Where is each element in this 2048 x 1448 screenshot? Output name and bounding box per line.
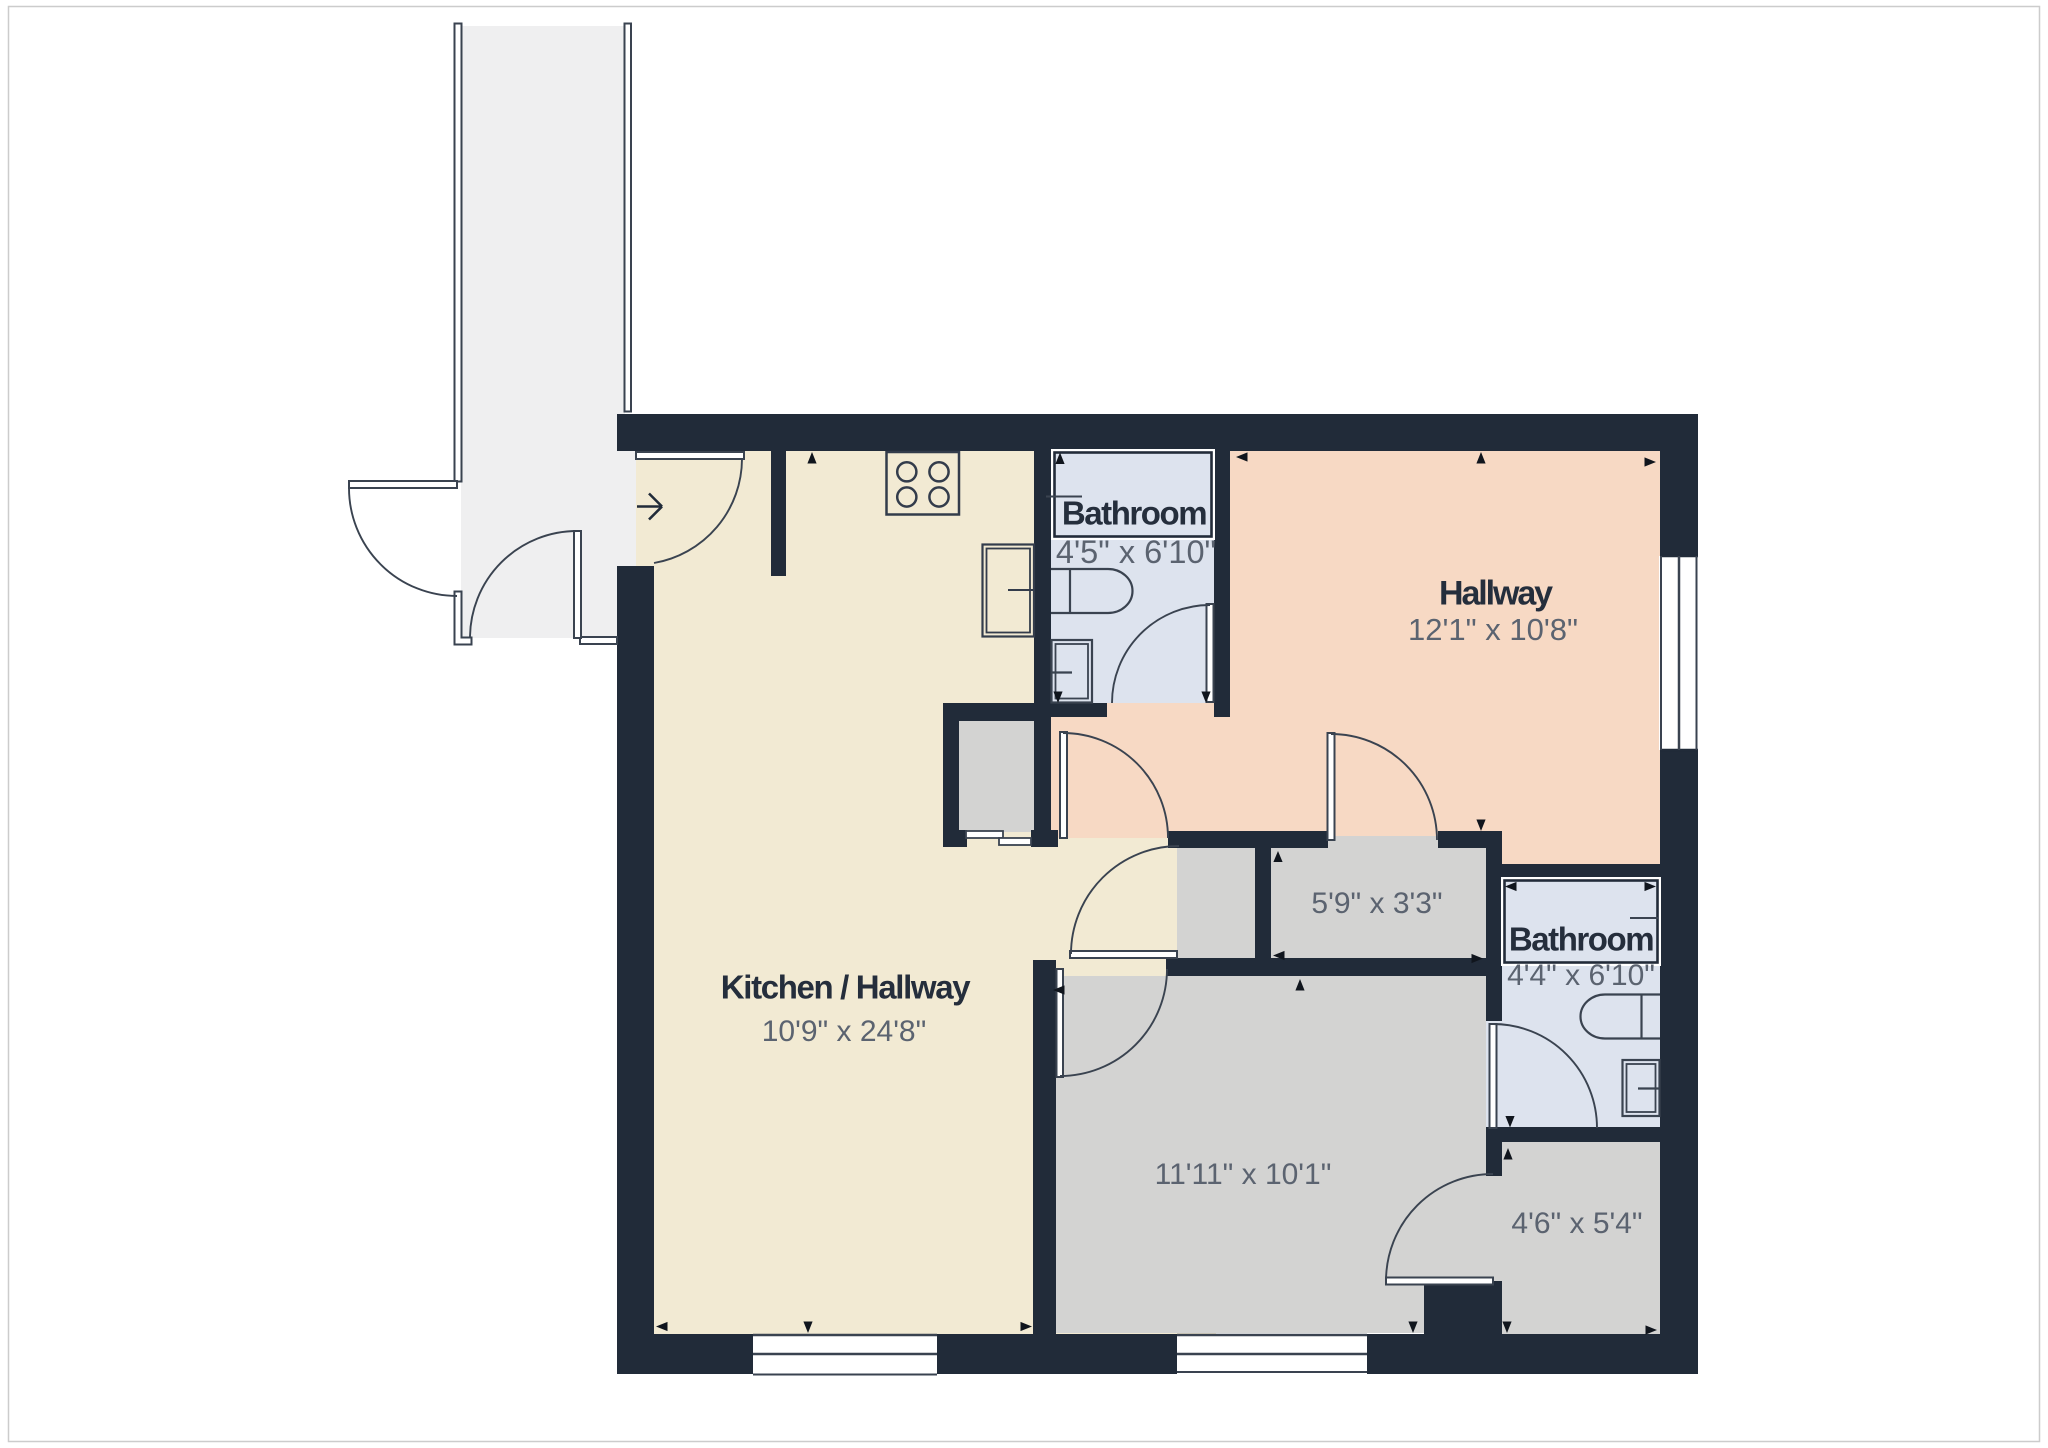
svg-text:10'9" x 24'8": 10'9" x 24'8": [762, 1015, 927, 1048]
svg-text:Bathroom: Bathroom: [1509, 921, 1653, 958]
svg-text:Kitchen / Hallway: Kitchen / Hallway: [721, 969, 971, 1006]
svg-text:4'5" x 6'10": 4'5" x 6'10": [1056, 534, 1216, 570]
svg-text:Hallway: Hallway: [1439, 575, 1553, 613]
svg-text:Bathroom: Bathroom: [1062, 495, 1206, 532]
svg-text:4'6" x 5'4": 4'6" x 5'4": [1511, 1207, 1642, 1240]
svg-text:12'1" x 10'8": 12'1" x 10'8": [1408, 612, 1578, 647]
svg-text:4'4" x 6'10": 4'4" x 6'10": [1507, 959, 1655, 992]
svg-text:11'11" x 10'1": 11'11" x 10'1": [1155, 1158, 1332, 1191]
svg-text:5'9" x 3'3": 5'9" x 3'3": [1311, 887, 1442, 920]
